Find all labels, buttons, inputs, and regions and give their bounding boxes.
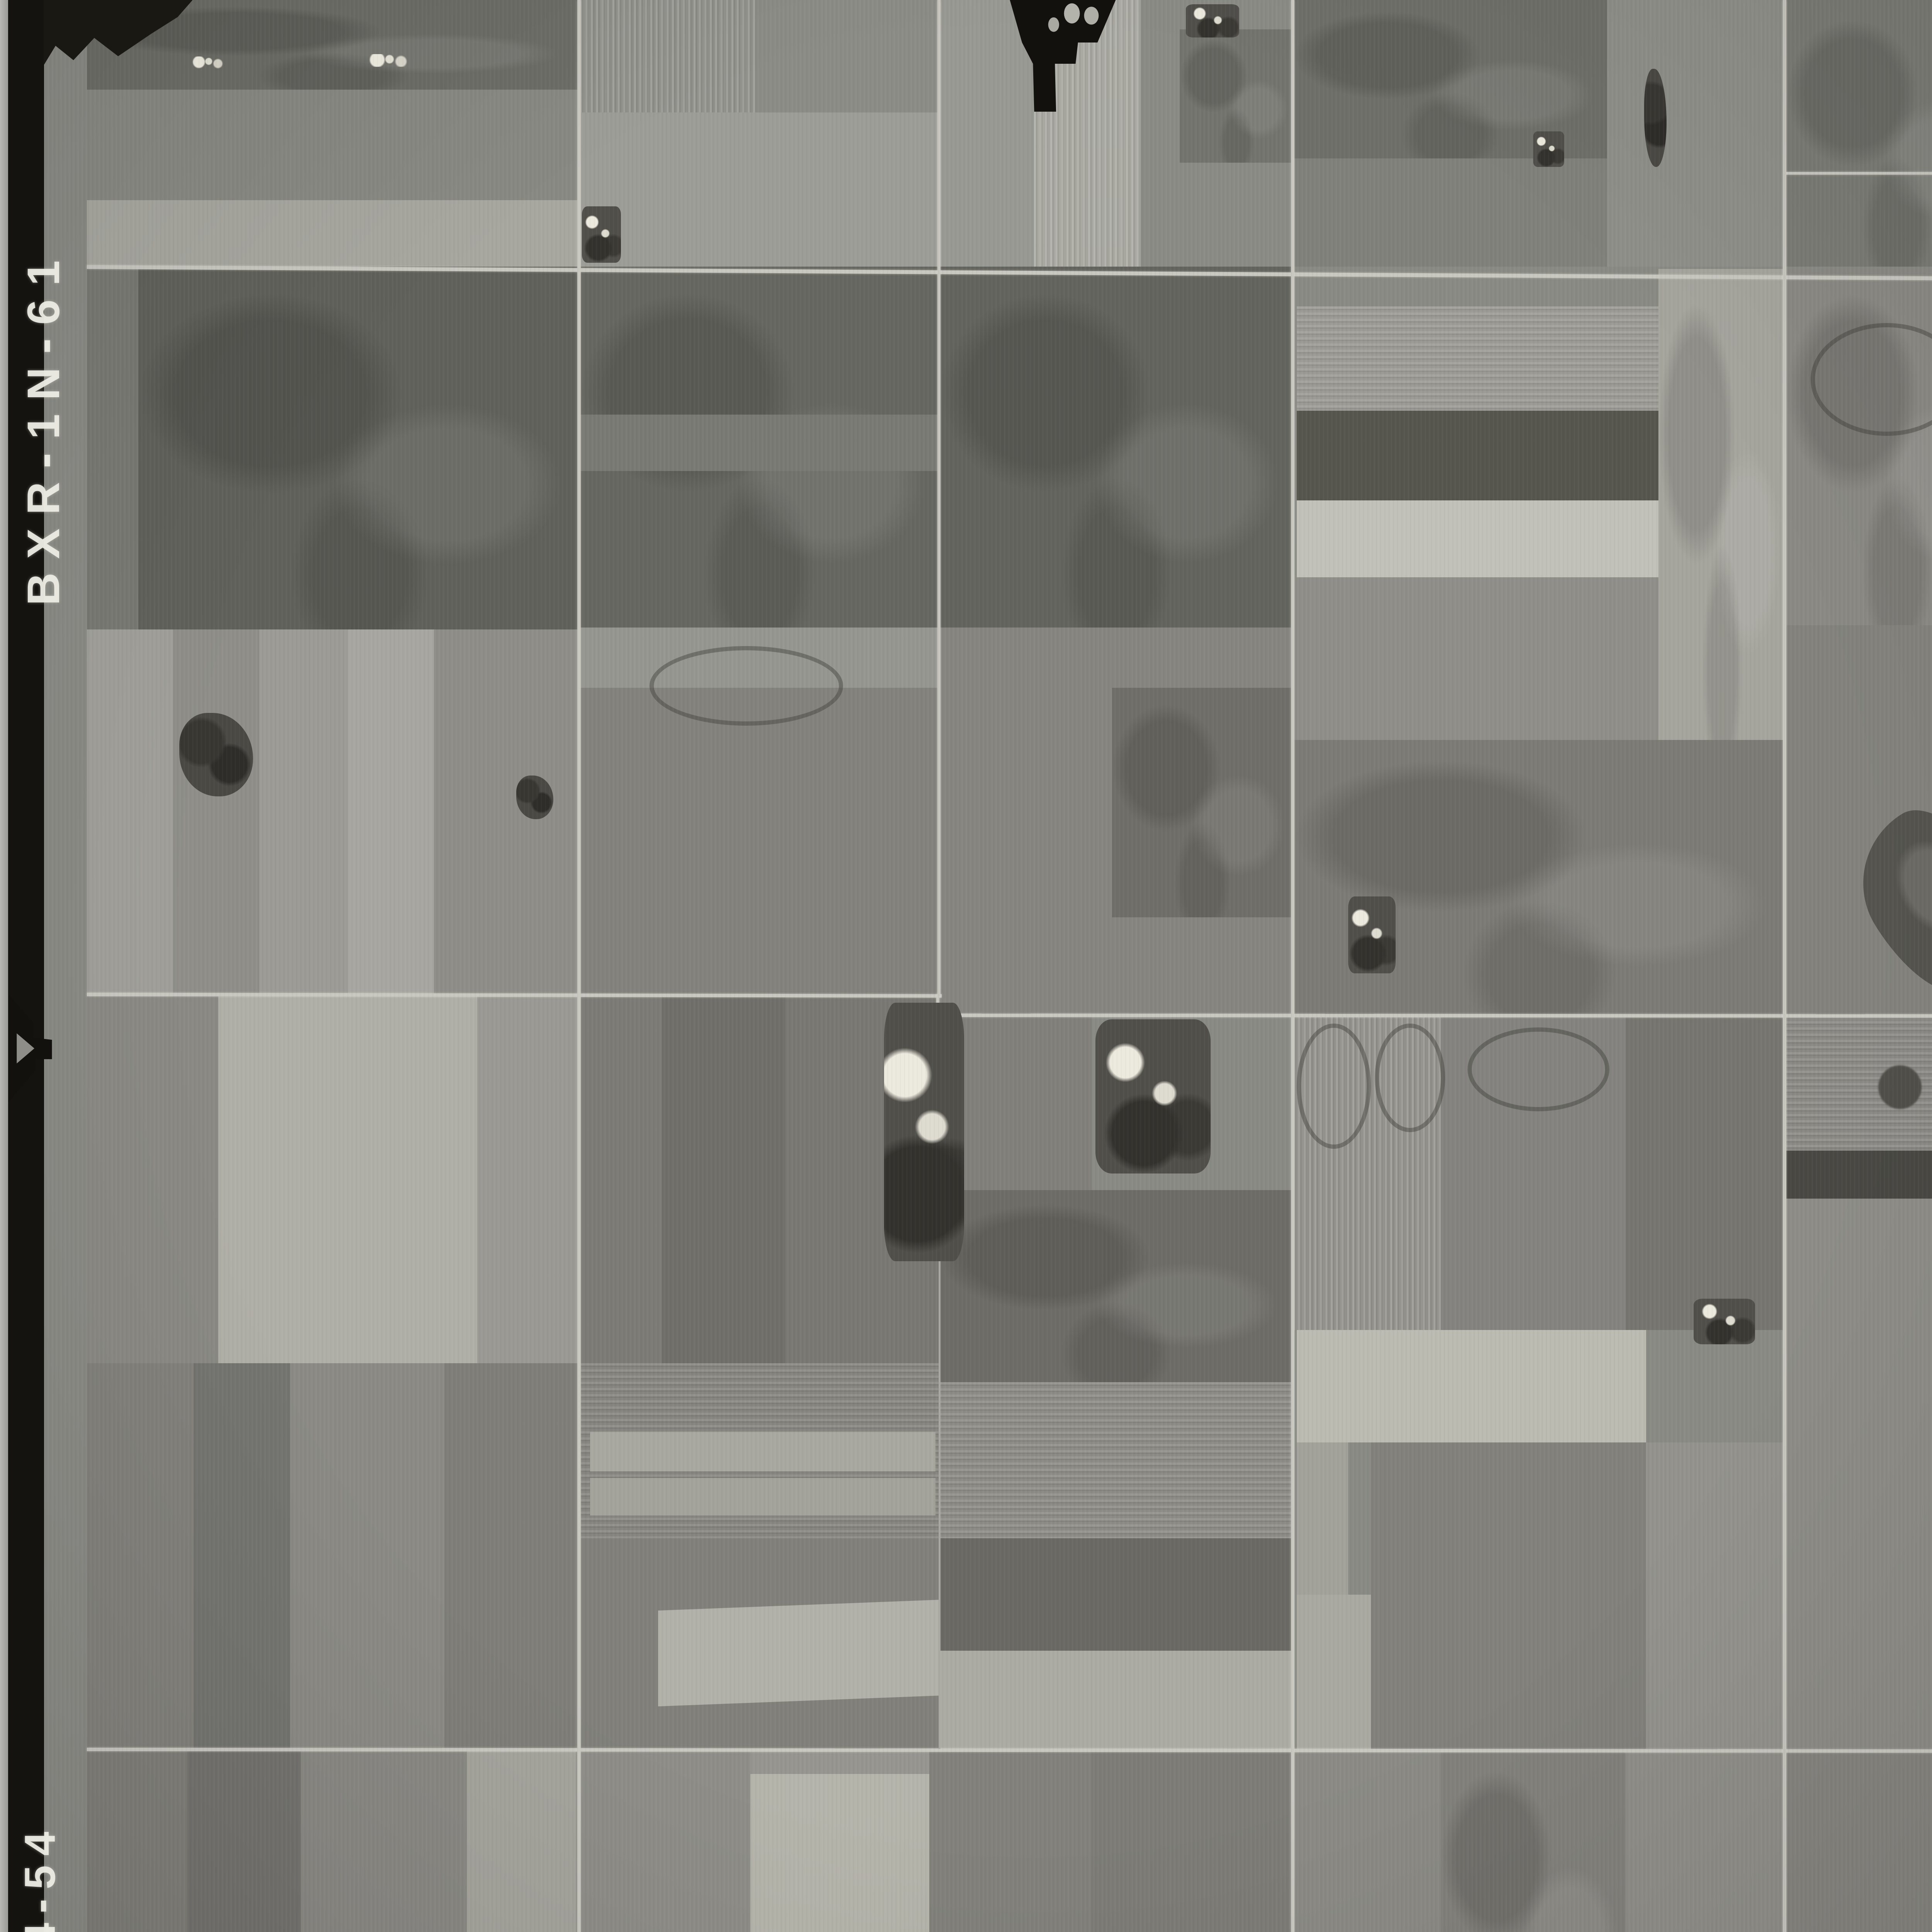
scanner-edge-strip (0, 0, 8, 1932)
farmstead (582, 206, 621, 263)
farmstead (179, 713, 253, 796)
farmstead (1348, 896, 1395, 974)
farmstead (1644, 69, 1667, 167)
aerial-photo (44, 0, 1932, 1932)
aerial-photo-scan: BXR-1N-61 7-24-54 (0, 0, 1932, 1932)
farmstead (1694, 1299, 1755, 1345)
farmstead (884, 1003, 964, 1261)
farmsteads-layer (44, 0, 1932, 1932)
farmstead (1186, 4, 1239, 37)
farmstead (516, 776, 553, 819)
fiducial-left-middle-icon (9, 995, 67, 1102)
fiducial-top-center-icon (998, 0, 1119, 112)
farmstead (192, 56, 224, 69)
farmstead (1095, 1019, 1211, 1173)
farmstead (1533, 131, 1564, 167)
farmstead (368, 54, 409, 66)
photo-id-label: BXR-1N-61 (17, 23, 95, 605)
photo-date-label: 7-24-54 (15, 1679, 93, 1932)
